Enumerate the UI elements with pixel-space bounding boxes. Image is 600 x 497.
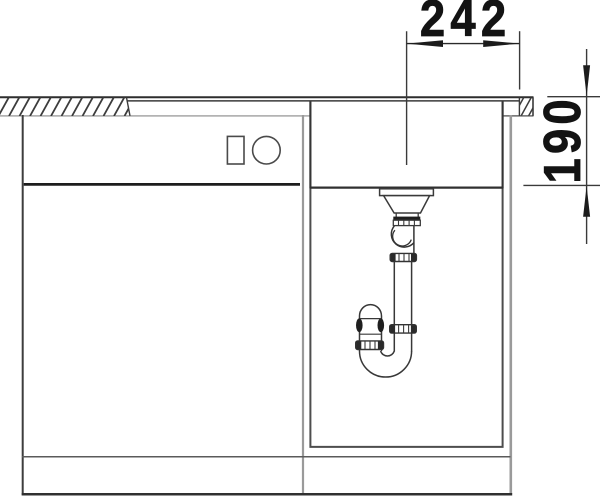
svg-text:242: 242 <box>420 0 511 48</box>
svg-text:190: 190 <box>534 95 591 183</box>
